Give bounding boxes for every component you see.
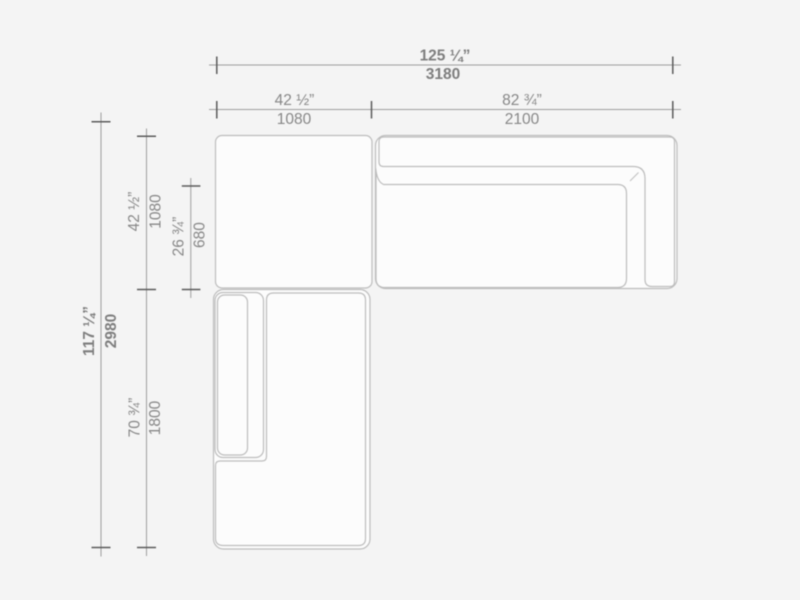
svg-text:2980: 2980 (103, 314, 120, 348)
svg-text:42 ½”: 42 ½” (275, 92, 315, 109)
svg-text:680: 680 (192, 222, 209, 248)
svg-text:1080: 1080 (277, 111, 312, 128)
svg-text:117 ¼”: 117 ¼” (81, 306, 98, 356)
svg-text:3180: 3180 (426, 66, 460, 83)
svg-text:125 ¼”: 125 ¼” (420, 48, 471, 65)
svg-text:2100: 2100 (505, 111, 540, 128)
svg-text:82 ¾”: 82 ¾” (502, 92, 542, 109)
svg-text:1080: 1080 (148, 194, 165, 229)
svg-text:42 ½”: 42 ½” (126, 192, 143, 232)
svg-text:26 ¾”: 26 ¾” (171, 217, 188, 257)
svg-text:1800: 1800 (147, 400, 164, 435)
svg-text:70 ¾”: 70 ¾” (127, 398, 144, 438)
